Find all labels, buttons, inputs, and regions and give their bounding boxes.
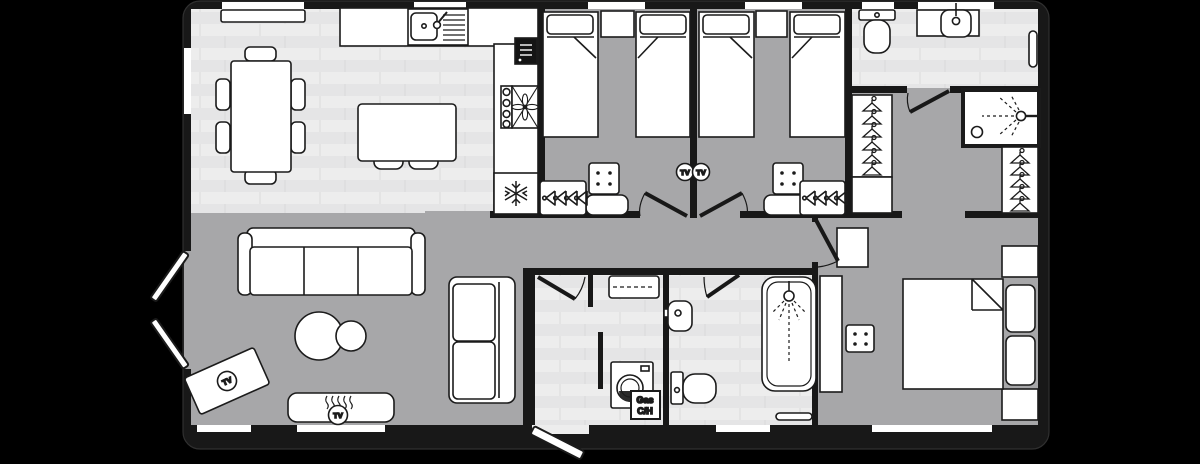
coat-hooks-icon xyxy=(800,181,847,215)
coat-hooks-icon xyxy=(540,181,587,215)
wall-lounge-hall xyxy=(523,268,535,425)
basin xyxy=(664,301,692,331)
headboard-shelf xyxy=(601,11,634,37)
wall-utility-stub-b xyxy=(598,332,603,389)
bedside-cabinet xyxy=(1002,246,1038,277)
microwave-icon xyxy=(515,38,537,64)
drawer-unit xyxy=(773,163,803,194)
dining-chair xyxy=(291,79,305,110)
single-bed xyxy=(636,12,690,137)
bedside-cabinet xyxy=(1002,389,1038,420)
tv-label: TV xyxy=(696,168,706,177)
toilet xyxy=(859,10,895,53)
tap-icon xyxy=(434,22,441,29)
towel-rail xyxy=(776,413,812,420)
overhead-cupboard xyxy=(609,276,659,298)
wall-bed1-bed2 xyxy=(690,9,697,218)
dining-chair xyxy=(216,79,230,110)
window-dining xyxy=(222,2,304,9)
window-bed2 xyxy=(745,2,802,9)
shelf-unit xyxy=(852,177,892,213)
sideboard xyxy=(221,10,305,22)
headboard-shelf xyxy=(756,11,787,37)
floor-plan-drawing: TV TV xyxy=(0,0,1200,464)
single-bed xyxy=(790,12,845,137)
coffee-table-small xyxy=(336,321,366,351)
gas-label-line1: Gas xyxy=(636,395,653,405)
tv-label: TV xyxy=(680,168,690,177)
dining-chair xyxy=(216,122,230,153)
sofa-three-seat xyxy=(238,228,425,295)
kitchen-sink xyxy=(408,9,468,45)
gas-label-line2: C/H xyxy=(637,406,653,416)
hob-icon xyxy=(501,86,512,128)
fireplace-tv-unit: TV xyxy=(288,393,394,425)
fridge xyxy=(494,173,538,214)
window-fireplace-bottom xyxy=(297,425,385,432)
pillow xyxy=(1006,285,1035,332)
window-bathroom-bottom xyxy=(716,425,770,432)
single-bed xyxy=(699,12,754,137)
dining-chair xyxy=(245,47,276,61)
gas-boiler: Gas C/H xyxy=(631,391,660,419)
wardrobe-hanging xyxy=(852,95,892,177)
drawer-unit xyxy=(589,163,619,194)
wall-utility-stub-a xyxy=(588,275,593,307)
floor-plan: TV TV xyxy=(0,0,1200,464)
extractor-fan-icon xyxy=(512,86,538,128)
wardrobe-hanging xyxy=(1002,147,1038,213)
sofa-two-seat xyxy=(449,277,515,403)
kitchen-island xyxy=(358,104,456,161)
window-bed1 xyxy=(588,2,645,9)
bath-with-shower xyxy=(762,277,816,391)
opening-french-doors xyxy=(184,251,191,369)
wall-utility-bathroom xyxy=(663,268,669,425)
single-bed xyxy=(543,12,598,137)
towel-rail xyxy=(1029,31,1037,67)
shower-cubicle xyxy=(963,90,1039,146)
tv-label: TV xyxy=(333,411,343,420)
dining-table xyxy=(231,61,291,172)
shower-head-icon xyxy=(784,291,794,301)
toilet xyxy=(671,372,716,404)
wall-ensuite-bottom-a xyxy=(845,86,907,93)
pillow xyxy=(1006,336,1035,385)
ottoman xyxy=(846,325,874,352)
cupboard xyxy=(837,228,868,267)
window-master-bottom xyxy=(872,425,992,432)
wall-corridor-bottom-a xyxy=(588,268,703,275)
corridor-floor xyxy=(425,211,818,268)
window-lounge-bottom xyxy=(197,425,251,432)
window-dining-side xyxy=(184,48,191,114)
wardrobe xyxy=(820,276,842,392)
bench xyxy=(586,195,628,215)
wall-bed2-ensuite xyxy=(845,9,852,218)
window-ensuite-toilet xyxy=(862,2,894,9)
wall-corridor-bottom-b xyxy=(740,268,818,275)
dining-chair xyxy=(291,122,305,153)
